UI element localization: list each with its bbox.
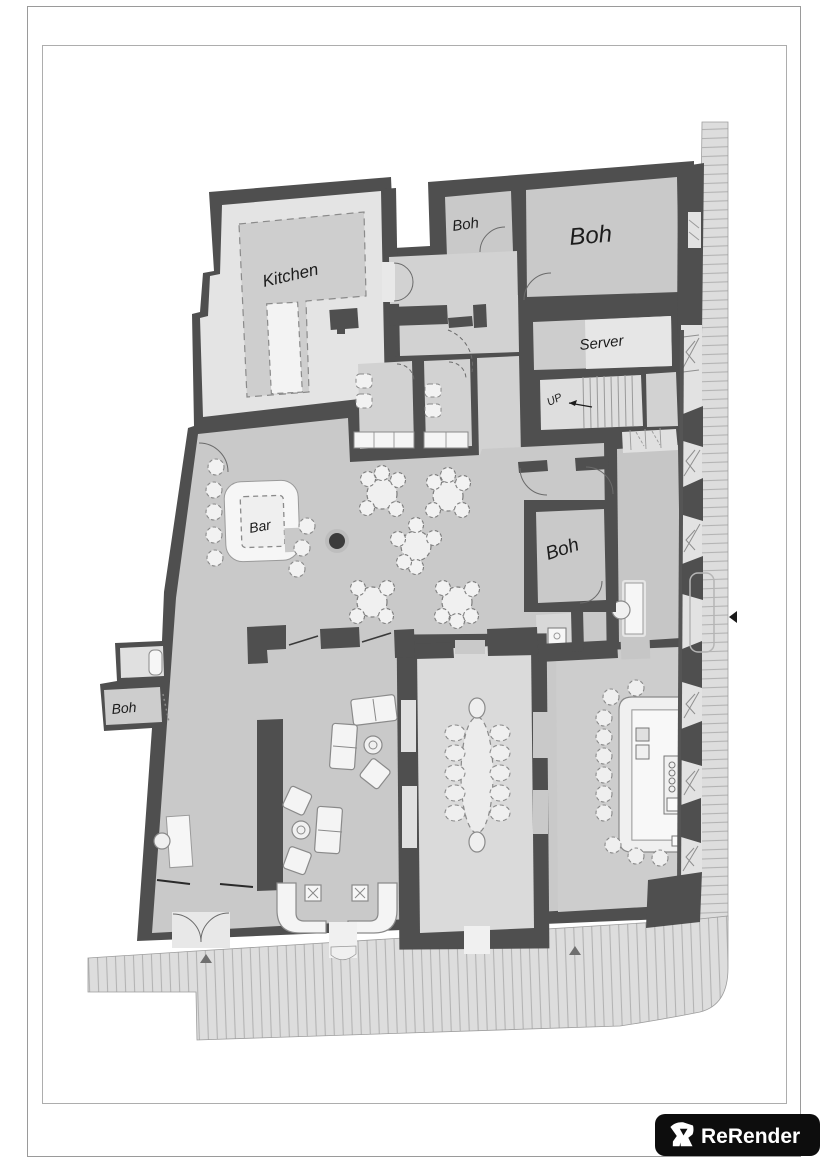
svg-text:Boh: Boh <box>111 699 137 717</box>
svg-text:ReRender: ReRender <box>701 1125 800 1148</box>
svg-text:Boh: Boh <box>568 220 613 251</box>
